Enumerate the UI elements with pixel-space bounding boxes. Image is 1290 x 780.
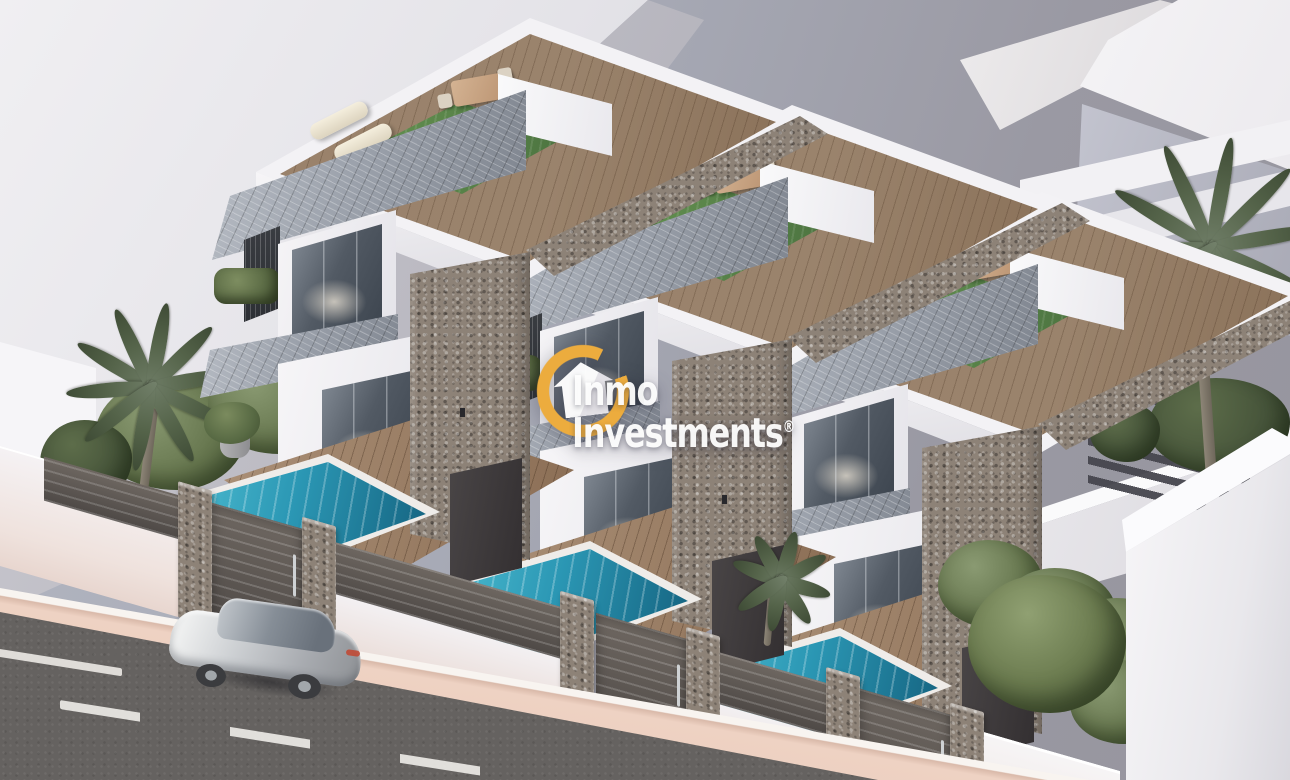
- brand-line2: Investments®: [572, 409, 861, 451]
- brand-text: Inmo Investments®: [572, 374, 942, 451]
- wall-lamp: [460, 408, 465, 417]
- brand-line1: Inmo: [572, 374, 861, 409]
- dining-chair: [437, 93, 453, 109]
- silver-suv: [168, 598, 378, 710]
- gate-handle: [293, 554, 296, 597]
- small-palm: [722, 540, 832, 620]
- potted-plant: [204, 402, 260, 444]
- architectural-render: Inmo Investments®: [0, 0, 1290, 780]
- gate-handle: [677, 664, 680, 707]
- watermark: Inmo Investments®: [490, 330, 950, 480]
- balcony-planter: [214, 268, 280, 304]
- round-tree: [968, 575, 1126, 713]
- registered-mark: ®: [783, 417, 795, 436]
